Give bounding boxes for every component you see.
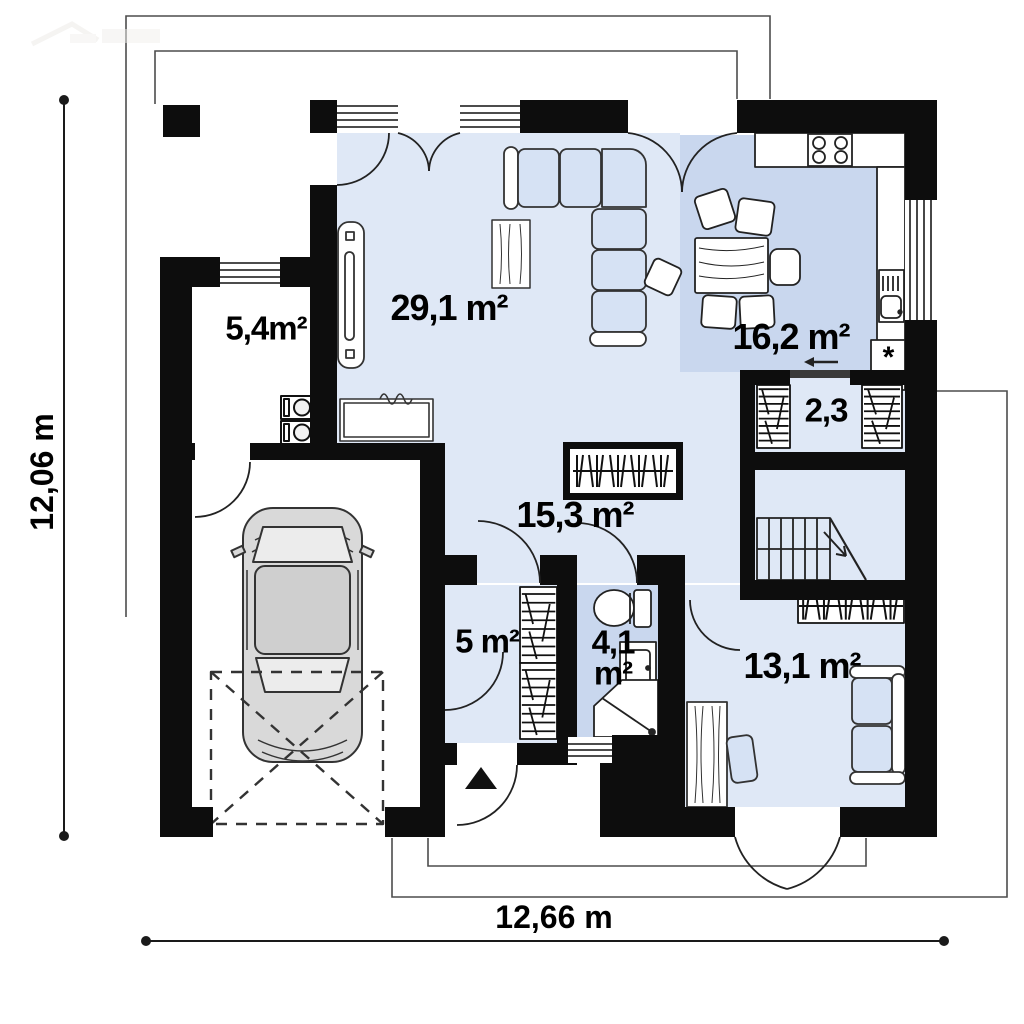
room-label-pantry: 2,3: [805, 394, 848, 425]
dining-chair: [735, 198, 775, 237]
vestibule-closet: [520, 587, 557, 739]
car-roof: [255, 566, 350, 654]
room-label-bathroom-line1: 4,1: [592, 627, 635, 658]
floor-plan-canvas: 5,4m² 29,1 m² 16,2 m² 2,3 15,3 m² 5 m² 4…: [0, 0, 1024, 1024]
room-label-utility: 5,4m²: [225, 312, 306, 343]
dimension-height-label: 12,06 m: [27, 413, 57, 530]
stove-icon: [808, 134, 852, 166]
window: [905, 200, 937, 320]
door-utility-garage: [195, 462, 250, 517]
rug: [492, 220, 530, 288]
room-label-kitchen: 16,2 m²: [732, 320, 849, 354]
room-label-hall: 15,3 m²: [516, 498, 633, 532]
floor-plan-drawing: [0, 0, 1024, 1024]
room-label-vestibule: 5 m²: [455, 625, 519, 656]
window: [220, 257, 280, 287]
eaves-outline-inner: [155, 51, 737, 104]
window: [460, 100, 520, 133]
hall-wardrobe: [563, 442, 683, 500]
tv-board: [338, 222, 364, 368]
stairs-floor: [740, 460, 905, 580]
entrance-arrow-icon: [465, 767, 497, 789]
sink-icon: [879, 270, 904, 322]
hall-sideboard: [340, 394, 433, 441]
steps-outline: [428, 838, 866, 866]
car-windshield: [253, 527, 352, 562]
pillar: [163, 105, 200, 137]
room-label-living: 29,1 m²: [390, 291, 507, 325]
room-label-bedroom: 13,1 m²: [743, 649, 860, 683]
french-door-bedroom: [787, 837, 840, 889]
washer-dryer: [281, 396, 313, 444]
room-label-bathroom: 4,1 m²: [592, 627, 635, 690]
room-label-bathroom-line2: m²: [592, 658, 635, 689]
fridge-symbol: *: [883, 344, 894, 373]
dimension-width-label: 12,66 m: [495, 902, 612, 932]
french-door-bedroom: [735, 837, 787, 889]
car: [231, 508, 373, 762]
desk: [687, 702, 727, 807]
dining-chair: [770, 249, 800, 285]
watermark-logo: [32, 24, 160, 44]
toilet-icon: [594, 590, 651, 627]
desk-chair: [726, 734, 758, 783]
car-rear-window: [256, 658, 349, 692]
window: [337, 100, 398, 133]
window: [568, 737, 612, 763]
entrance-door: [457, 765, 517, 825]
